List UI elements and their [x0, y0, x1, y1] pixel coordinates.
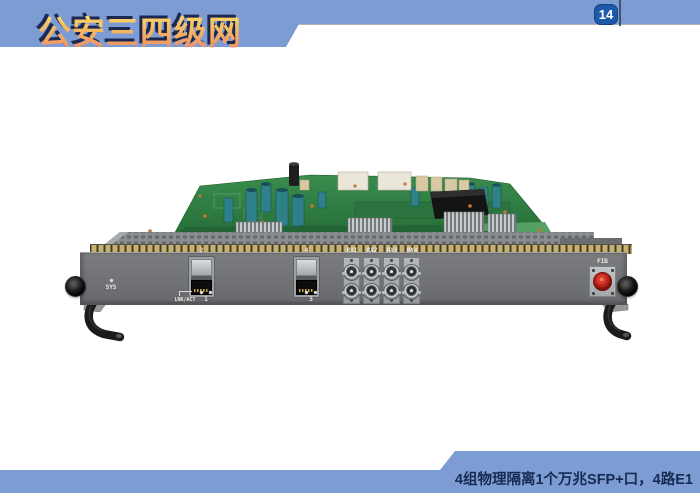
- fiber-plate-screws: [592, 269, 595, 272]
- bnc-connector: [383, 264, 400, 281]
- fiducial-dots: [148, 182, 542, 232]
- sfp2-top-label: 4: [293, 248, 320, 254]
- capacitors: [224, 162, 501, 226]
- bottom-banner: 4组物理隔离1个万兆SFP+口，4路E1: [0, 451, 700, 493]
- bnc-connector: [343, 283, 360, 300]
- bnc-connector: [363, 264, 380, 281]
- transformer-module: [430, 189, 489, 219]
- bnc-connector: [403, 283, 420, 300]
- bnc-label-rx4: RX4: [402, 248, 422, 254]
- lnk-act-bracket: [179, 291, 192, 296]
- bnc-label-rx3: RX3: [382, 248, 402, 254]
- slide-title-text: 公安三四级网: [38, 6, 242, 54]
- fiber-fc-connector: [593, 272, 612, 291]
- fiber-port-label: FIB: [589, 259, 616, 265]
- presentation-slide: 公安三四级网 公安三四级网 14: [0, 0, 700, 493]
- bnc-column-4: [403, 257, 420, 304]
- bnc-connector: [363, 283, 380, 300]
- fiber-port-plate: [589, 266, 616, 297]
- bnc-connector: [403, 264, 420, 281]
- slide-caption: 4组物理隔离1个万兆SFP+口，4路E1: [455, 468, 693, 489]
- sfp1-top-label: 2: [188, 248, 215, 254]
- bnc-connector: [343, 264, 360, 281]
- thumbscrew-right: [617, 276, 638, 297]
- sfp2-bottom-label: 3: [305, 297, 317, 303]
- pcb-components: [148, 162, 542, 244]
- lnk-act-label: LNK/ACT: [172, 297, 198, 303]
- sys-led: [110, 279, 113, 282]
- bnc-column-3: [383, 257, 400, 304]
- heatsinks: [236, 212, 516, 244]
- bnc-label-rx1: RX1: [342, 248, 362, 254]
- ejector-handle-left: [89, 303, 122, 338]
- sfp2-led-b: [314, 291, 317, 294]
- sfp1-latch: [191, 259, 212, 276]
- ejector-handle-right: [608, 303, 629, 337]
- bnc-column-1: [343, 257, 360, 304]
- pcb-board: [172, 175, 553, 238]
- sfp2-led-a: [305, 291, 308, 294]
- page-number-badge: 14: [594, 4, 618, 25]
- sfp1-led-b: [209, 291, 212, 294]
- sfp1-led-a: [200, 291, 203, 294]
- sfp1-bottom-label: 1: [200, 297, 212, 303]
- ejector-bracket-right: [602, 304, 628, 312]
- bnc-label-rx2: RX2: [362, 248, 382, 254]
- sys-label: SYS: [99, 285, 123, 291]
- sfp2-latch: [296, 259, 317, 276]
- thumbscrew-left: [65, 276, 86, 297]
- banner-underline: [299, 24, 700, 25]
- bnc-connector: [383, 283, 400, 300]
- badge-divider-line: [619, 0, 621, 26]
- bnc-column-2: [363, 257, 380, 304]
- ejector-bracket-left: [84, 304, 106, 312]
- board-connectors: [300, 172, 469, 204]
